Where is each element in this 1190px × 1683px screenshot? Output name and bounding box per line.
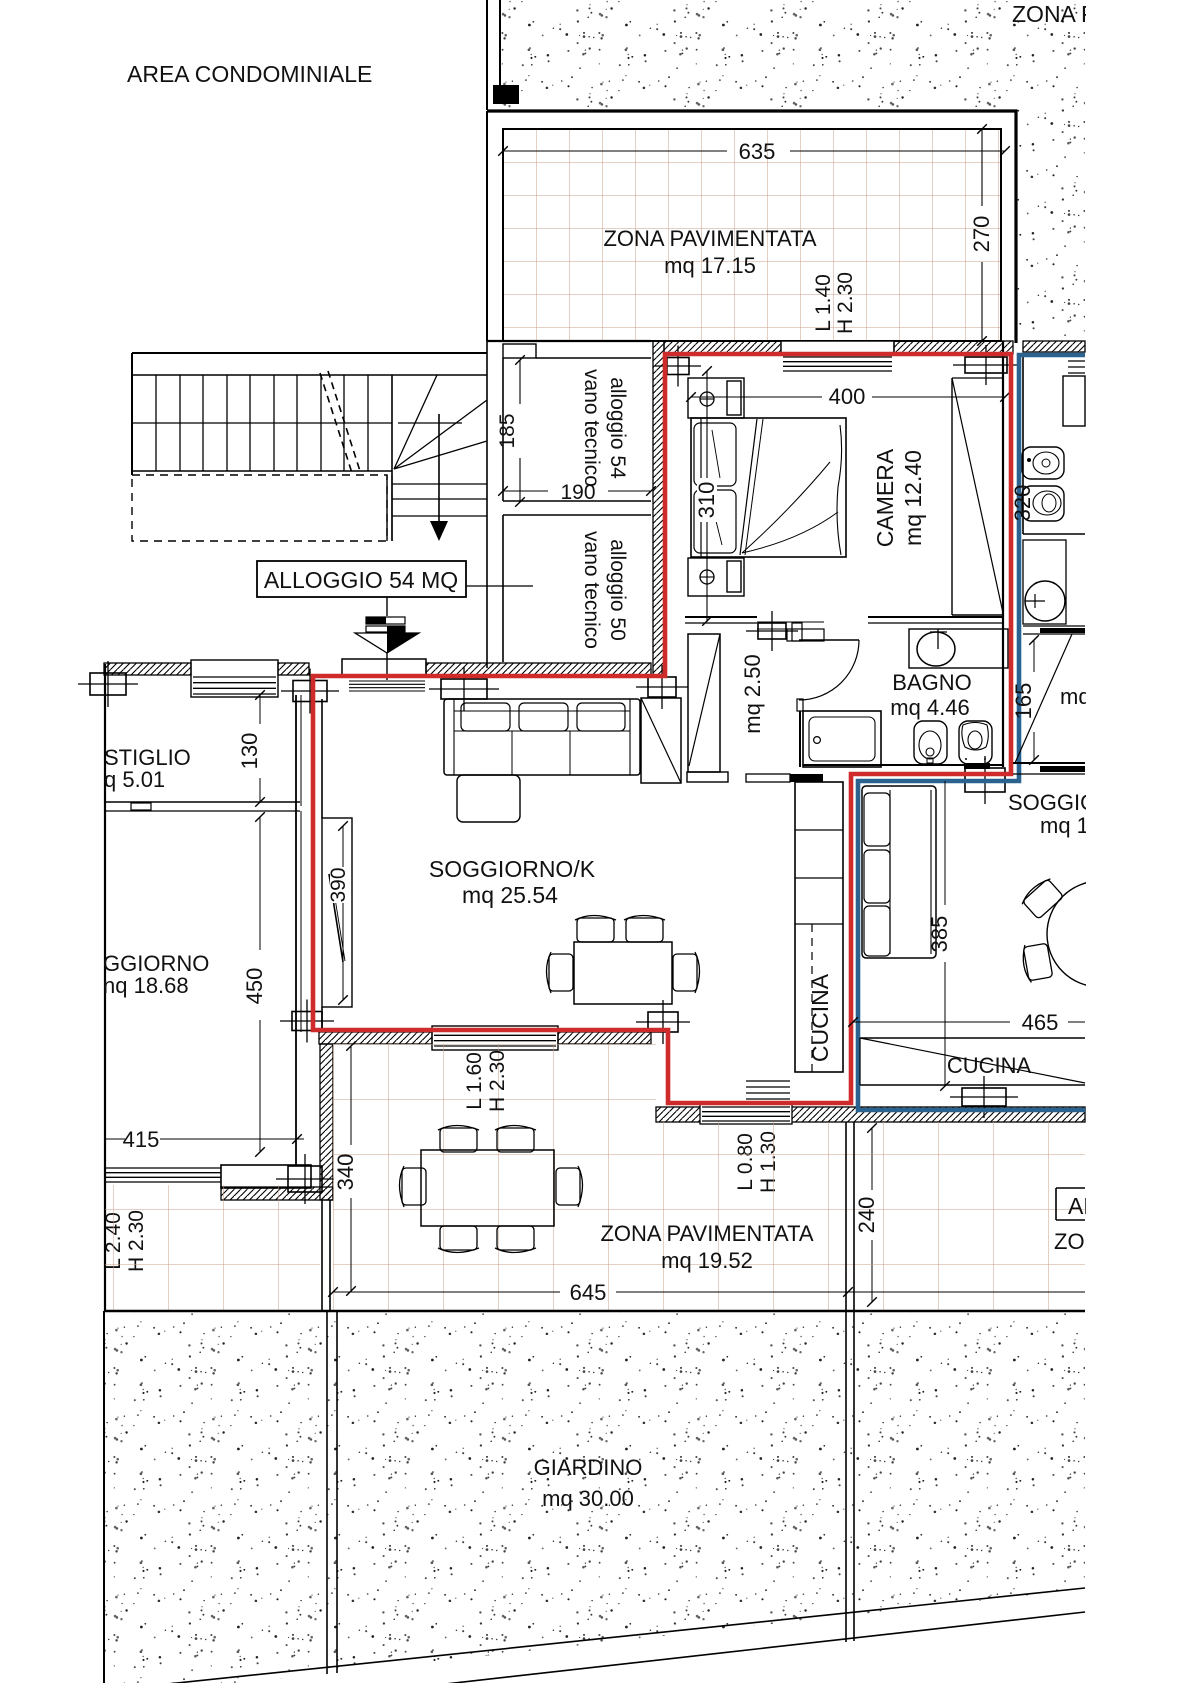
svg-text:SOGGIORNO/K: SOGGIORNO/K [429, 856, 596, 882]
svg-text:645: 645 [570, 1280, 607, 1305]
svg-text:CAMERA: CAMERA [872, 448, 898, 547]
svg-text:GIARDINO: GIARDINO [534, 1455, 643, 1480]
svg-text:185: 185 [496, 413, 519, 448]
svg-text:390: 390 [327, 867, 350, 902]
svg-text:mq: mq [1060, 684, 1091, 709]
svg-text:270: 270 [969, 216, 994, 253]
svg-text:mq 17.15: mq 17.15 [664, 253, 756, 278]
svg-text:CUCINA: CUCINA [947, 1053, 1032, 1078]
svg-text:BAGNO: BAGNO [892, 670, 971, 695]
svg-text:320: 320 [1010, 485, 1035, 522]
svg-text:415: 415 [123, 1127, 160, 1152]
svg-text:H 2.30: H 2.30 [834, 272, 857, 334]
svg-text:635: 635 [739, 139, 776, 164]
svg-text:ZONA PAVIMENTATA: ZONA PAVIMENTATA [603, 226, 816, 251]
svg-text:400: 400 [829, 384, 866, 409]
svg-text:nq 18.68: nq 18.68 [103, 973, 189, 998]
svg-text:ZO: ZO [1054, 1229, 1085, 1254]
svg-text:AREA CONDOMINIALE: AREA CONDOMINIALE [127, 61, 372, 87]
svg-text:alloggio 50: alloggio 50 [606, 539, 629, 641]
svg-text:mq 4.46: mq 4.46 [890, 695, 970, 720]
svg-text:190: 190 [560, 481, 595, 504]
svg-text:q 5.01: q 5.01 [104, 767, 165, 792]
svg-text:mq 30.00: mq 30.00 [542, 1486, 634, 1511]
svg-text:mq 19.52: mq 19.52 [661, 1248, 753, 1273]
svg-text:L 1.40: L 1.40 [812, 274, 835, 332]
svg-text:mq 1: mq 1 [1040, 813, 1089, 838]
svg-text:CUCINA: CUCINA [807, 973, 833, 1062]
svg-text:465: 465 [1022, 1010, 1059, 1035]
svg-text:ALLOGGIO 54 MQ: ALLOGGIO 54 MQ [264, 567, 458, 593]
svg-text:ZONA PAVIMENTATA: ZONA PAVIMENTATA [600, 1221, 813, 1246]
svg-text:450: 450 [242, 968, 267, 1005]
svg-text:340: 340 [333, 1154, 358, 1191]
svg-text:385: 385 [927, 916, 952, 953]
svg-text:SOGGIO: SOGGIO [1008, 790, 1097, 815]
svg-text:vano tecnico: vano tecnico [580, 369, 603, 487]
svg-text:165: 165 [1011, 683, 1036, 720]
svg-text:H 2.30: H 2.30 [486, 1050, 509, 1112]
svg-text:mq 25.54: mq 25.54 [462, 882, 558, 908]
svg-text:alloggio 54: alloggio 54 [606, 377, 629, 479]
svg-text:mq 12.40: mq 12.40 [900, 450, 926, 546]
svg-text:310: 310 [694, 482, 719, 519]
svg-text:L 1.60: L 1.60 [463, 1052, 486, 1110]
svg-text:130: 130 [237, 733, 262, 770]
svg-text:mq 2.50: mq 2.50 [740, 654, 765, 734]
svg-text:vano tecnico: vano tecnico [580, 531, 603, 649]
